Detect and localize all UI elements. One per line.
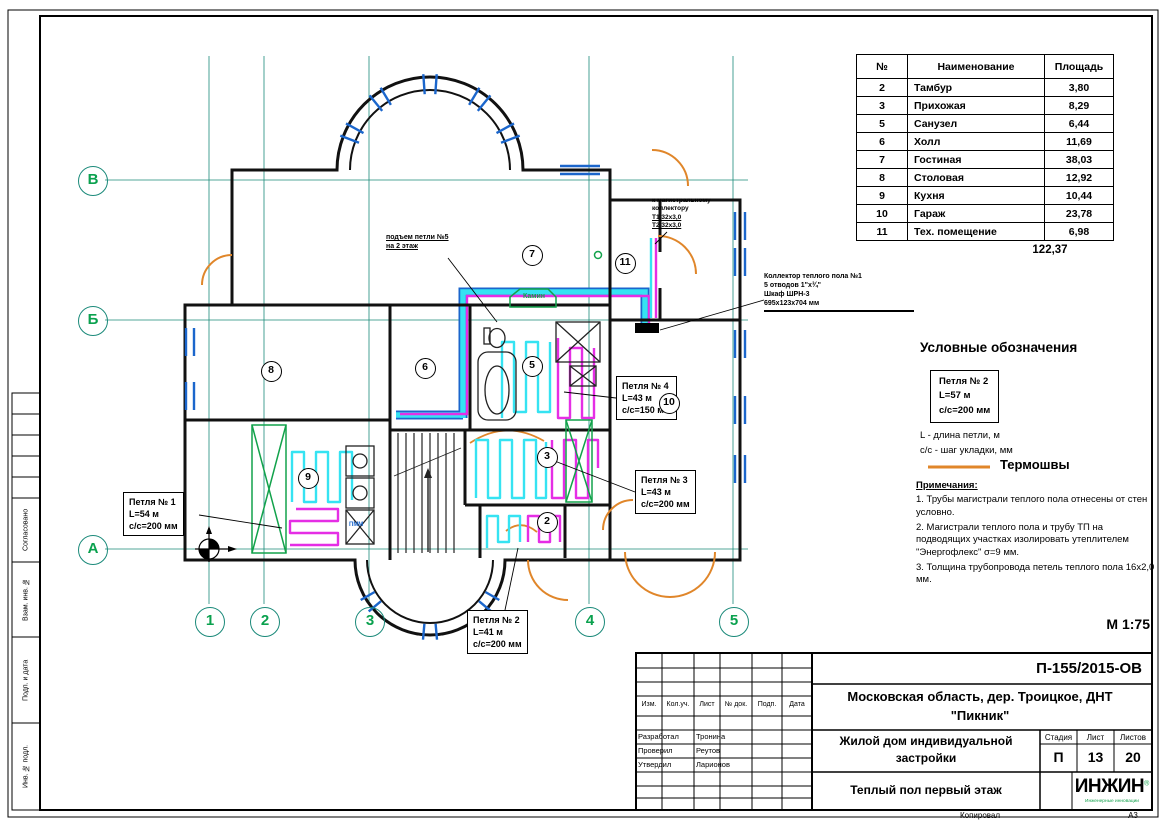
rooms-table-header: № Наименование Площадь: [857, 55, 1114, 79]
table-row: 7Гостиная38,03: [857, 151, 1114, 169]
margin-label-vzam-inv: Взам. инв. №: [12, 562, 40, 637]
fixtures: [346, 322, 600, 544]
dishwasher-label: ПММ: [349, 522, 363, 530]
stage-label: Стадия: [1040, 733, 1077, 742]
stairs-arrowhead: [424, 468, 432, 478]
margin-label-inv-podl: Инв. № подл.: [12, 723, 40, 810]
collector-note: Коллектор теплого пола №1 5 отводов 1"х¾…: [764, 272, 914, 312]
document-number: П-155/2015-ОВ: [816, 660, 1142, 677]
room-circle-11: 11: [615, 253, 636, 274]
scale-label: М 1:75: [1030, 616, 1150, 632]
axis-row-v: В: [78, 166, 108, 196]
loop1-label: Петля № 1 L=54 м с/с=200 мм: [123, 492, 184, 536]
sheets-label: Листов: [1114, 733, 1152, 742]
table-row: 2Тамбур3,80: [857, 79, 1114, 97]
name-approved: Ларионов: [696, 760, 751, 769]
object-name: Московская область, дер. Троицкое, ДНТ "…: [830, 688, 1130, 726]
collector-box: [635, 323, 659, 333]
legend-thermo-label: Термошвы: [1000, 457, 1070, 472]
main-collector-note: к магистральному коллектору Т1 32х3,0 Т2…: [652, 197, 711, 231]
legend-sample-box: Петля № 2 L=57 м с/с=200 мм: [930, 370, 999, 423]
role-checked: Проверил: [638, 746, 693, 755]
stage-value: П: [1040, 749, 1077, 765]
vent-dot: [595, 252, 602, 259]
name-developed: Тронина: [696, 732, 751, 741]
axis-col-5: 5: [719, 607, 749, 637]
col-ndok: № док.: [720, 701, 752, 708]
table-row: 3Прихожая8,29: [857, 97, 1114, 115]
role-developed: Разработал: [638, 732, 693, 741]
col-data: Дата: [782, 701, 812, 708]
axis-col-1: 1: [195, 607, 225, 637]
role-approved: Утвердил: [638, 760, 693, 769]
room-circle-9: 9: [298, 468, 319, 489]
legend-title: Условные обозначения: [920, 340, 1130, 355]
logo-subtitle: Инженерные инновации: [1073, 799, 1151, 804]
room-circle-2: 2: [537, 512, 558, 533]
room-circle-10: 10: [659, 393, 680, 414]
drawing-sheet: { "plan": { "grid_rows": ["В","Б","А"], …: [0, 0, 1166, 824]
table-row: 10Гараж23,78: [857, 205, 1114, 223]
riser-note: подъем петли №5 на 2 этаж: [386, 233, 449, 251]
axis-row-a: А: [78, 535, 108, 565]
table-row: 5Санузел6,44: [857, 115, 1114, 133]
axis-col-4: 4: [575, 607, 605, 637]
col-podp: Подп.: [752, 701, 782, 708]
legend-definitions: L - длина петли, м с/с - шаг укладки, мм: [920, 428, 1013, 458]
sheets-total: 20: [1114, 749, 1152, 765]
stairs: [394, 433, 461, 553]
logo-registered-mark: ®: [1144, 781, 1149, 788]
format-label: А3: [1115, 811, 1151, 820]
col-koluch: Кол.уч.: [662, 701, 694, 708]
logo-text: ИНЖИН: [1075, 776, 1144, 797]
sheet-title: Теплый пол первый этаж: [814, 783, 1038, 797]
name-checked: Реутов: [696, 746, 751, 755]
loop-bath-supply: [502, 342, 550, 418]
rooms-area-table: № Наименование Площадь 2Тамбур3,80 3Прих…: [856, 54, 1114, 241]
rooms-total-area: 122,37: [1010, 244, 1090, 256]
loop-hall-supply: [476, 440, 546, 498]
sheet-number: 13: [1077, 749, 1114, 765]
room-circle-6: 6: [415, 358, 436, 379]
legend-notes: Примечания: 1. Трубы магистрали теплого …: [916, 480, 1156, 587]
room-circle-5: 5: [522, 356, 543, 377]
axis-col-2: 2: [250, 607, 280, 637]
col-list: Лист: [694, 701, 720, 708]
margin-label-podp-data: Подп. и дата: [12, 637, 40, 723]
loop-kitchen-return: [290, 509, 338, 545]
table-row: 9Кухня10,44: [857, 187, 1114, 205]
axis-col-3: 3: [355, 607, 385, 637]
origin-marker: [195, 526, 237, 562]
fireplace-label: Камин: [512, 292, 556, 301]
table-row: 6Холл11,69: [857, 133, 1114, 151]
axis-row-b: Б: [78, 306, 108, 336]
copied-label: Копировал: [930, 811, 1030, 820]
sheet-label: Лист: [1077, 733, 1114, 742]
loop2-label: Петля № 2 L=41 м с/с=200 мм: [467, 610, 528, 654]
room-circle-8: 8: [261, 361, 282, 382]
col-izm: Изм.: [636, 701, 662, 708]
company-logo: ИНЖИН® Инженерные инновации: [1073, 776, 1151, 804]
margin-label-agreed: Согласовано: [12, 498, 40, 562]
project-name: Жилой дом индивидуальной застройки: [814, 733, 1038, 767]
loop-tambour-supply: [487, 516, 520, 548]
room-circle-7: 7: [522, 245, 543, 266]
table-row: 11Тех. помещение6,98: [857, 223, 1114, 241]
loop3-label: Петля № 3 L=43 м с/с=200 мм: [635, 470, 696, 514]
table-row: 8Столовая12,92: [857, 169, 1114, 187]
room-circle-3: 3: [537, 447, 558, 468]
